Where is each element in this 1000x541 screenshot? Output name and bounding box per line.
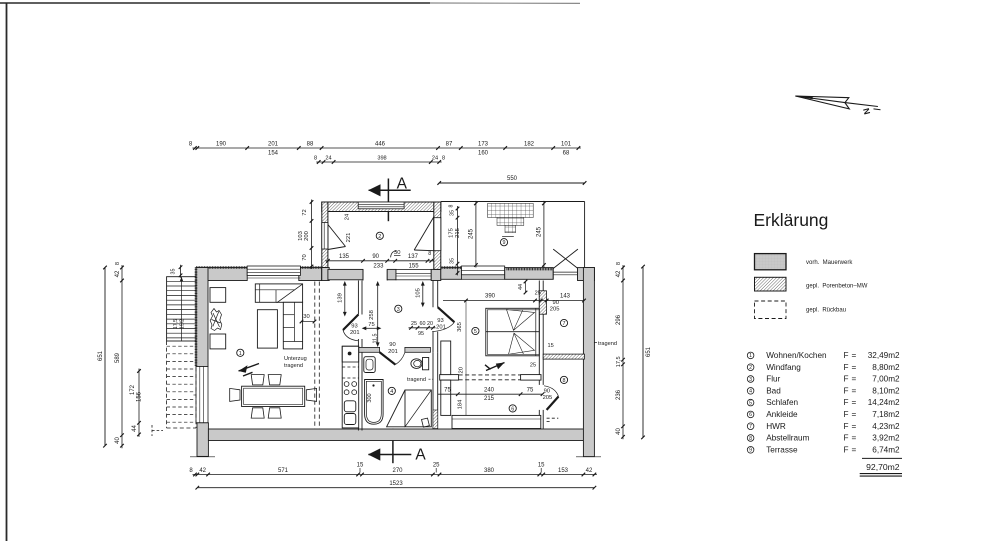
svg-text:15: 15: [357, 463, 364, 469]
svg-text:Schlafen: Schlafen: [766, 398, 798, 407]
svg-text:390: 390: [485, 294, 496, 300]
svg-text:446: 446: [375, 142, 386, 148]
svg-text:25: 25: [535, 290, 541, 296]
svg-text:14,24m2: 14,24m2: [868, 398, 900, 407]
svg-text:17,5: 17,5: [616, 356, 622, 367]
svg-text:15: 15: [538, 463, 545, 469]
svg-text:42: 42: [586, 468, 593, 474]
svg-text:155: 155: [409, 263, 420, 269]
svg-text:6: 6: [749, 412, 752, 418]
svg-text:9: 9: [503, 240, 506, 246]
svg-text:Erklärung: Erklärung: [754, 210, 829, 230]
svg-text:17,5: 17,5: [173, 319, 179, 329]
svg-text:571: 571: [278, 468, 289, 474]
svg-text:5: 5: [749, 400, 752, 406]
svg-text:F: F: [844, 386, 849, 395]
svg-text:A: A: [397, 175, 408, 192]
svg-text:=: =: [852, 410, 857, 419]
svg-text:F: F: [844, 375, 849, 384]
svg-text:201: 201: [268, 142, 279, 148]
svg-text:190: 190: [216, 142, 227, 148]
svg-text:Wohnen/Kochen: Wohnen/Kochen: [766, 351, 827, 360]
svg-text:156: 156: [137, 391, 143, 402]
svg-text:236: 236: [616, 389, 622, 400]
svg-text:19/2: 19/2: [180, 319, 186, 329]
svg-text:8: 8: [442, 156, 445, 162]
svg-text:32,49m2: 32,49m2: [868, 351, 900, 360]
svg-text:24: 24: [432, 156, 438, 162]
svg-text:90: 90: [389, 342, 395, 348]
svg-text:93: 93: [437, 318, 443, 324]
svg-text:25: 25: [530, 363, 536, 369]
svg-text:184: 184: [458, 399, 464, 409]
svg-text:160: 160: [478, 151, 489, 157]
svg-text:200: 200: [304, 231, 310, 241]
svg-text:88: 88: [307, 142, 314, 148]
svg-text:35: 35: [449, 210, 455, 216]
svg-text:8: 8: [314, 156, 317, 162]
svg-text:90: 90: [372, 254, 379, 260]
svg-text:205: 205: [550, 306, 560, 312]
svg-text:4: 4: [749, 389, 752, 395]
svg-text:F: F: [844, 422, 849, 431]
svg-text:92,70m2: 92,70m2: [866, 462, 900, 472]
svg-text:8,80m2: 8,80m2: [872, 363, 900, 372]
svg-text:=: =: [852, 363, 857, 372]
svg-text:7: 7: [749, 424, 752, 430]
svg-text:137: 137: [408, 254, 419, 260]
svg-text:398: 398: [377, 156, 386, 162]
svg-text:=: =: [852, 386, 857, 395]
svg-text:6,74m2: 6,74m2: [872, 445, 900, 454]
svg-text:Abstellraum: Abstellraum: [766, 434, 809, 443]
svg-text:90: 90: [544, 388, 550, 394]
svg-text:8: 8: [616, 262, 622, 265]
svg-text:365: 365: [457, 322, 463, 332]
svg-text:4,23m2: 4,23m2: [872, 422, 900, 431]
svg-text:5: 5: [474, 329, 477, 335]
svg-text:6: 6: [511, 406, 514, 412]
svg-text:72: 72: [302, 209, 308, 215]
svg-text:Unterzug: Unterzug: [284, 356, 307, 362]
svg-text:HWR: HWR: [766, 422, 786, 431]
svg-text:201: 201: [388, 349, 398, 355]
svg-text:44: 44: [132, 425, 138, 432]
svg-text:103: 103: [298, 231, 304, 241]
svg-text:651: 651: [646, 346, 652, 357]
svg-text:F: F: [844, 410, 849, 419]
svg-text:101: 101: [561, 142, 572, 148]
svg-text:8: 8: [749, 436, 752, 442]
svg-text:7,00m2: 7,00m2: [872, 375, 900, 384]
svg-text:42: 42: [115, 270, 121, 277]
svg-text:75: 75: [527, 388, 534, 394]
svg-text:7: 7: [563, 321, 566, 327]
svg-text:=: =: [852, 434, 857, 443]
svg-text:182: 182: [524, 142, 535, 148]
svg-text:93: 93: [351, 324, 357, 330]
svg-text:240: 240: [484, 388, 495, 394]
svg-text:215: 215: [484, 396, 495, 402]
svg-text:258: 258: [369, 310, 375, 320]
svg-text:=: =: [852, 351, 857, 360]
svg-text:=: =: [852, 422, 857, 431]
svg-text:24: 24: [344, 213, 350, 220]
svg-text:vorh. Mauerwerk: vorh. Mauerwerk: [806, 260, 853, 266]
svg-text:87: 87: [446, 142, 453, 148]
svg-text:F: F: [844, 434, 849, 443]
svg-text:42: 42: [199, 468, 206, 474]
svg-text:Terrasse: Terrasse: [766, 445, 798, 454]
svg-text:Ankleide: Ankleide: [766, 410, 798, 419]
svg-text:3,92m2: 3,92m2: [872, 434, 900, 443]
svg-text:42: 42: [616, 270, 622, 277]
svg-text:70: 70: [302, 254, 308, 260]
svg-text:tragend: tragend: [284, 363, 303, 369]
svg-text:172: 172: [130, 384, 136, 395]
svg-text:589: 589: [115, 352, 121, 363]
svg-text:90: 90: [553, 300, 559, 306]
svg-text:245: 245: [537, 226, 543, 237]
svg-text:270: 270: [392, 468, 403, 474]
svg-text:gepl. Porenbeton–MW: gepl. Porenbeton–MW: [806, 283, 868, 289]
svg-text:20: 20: [427, 321, 433, 327]
svg-text:8: 8: [448, 204, 454, 207]
svg-text:=: =: [852, 398, 857, 407]
svg-text:A: A: [415, 447, 426, 464]
svg-text:139: 139: [337, 293, 343, 303]
svg-text:8: 8: [563, 378, 566, 384]
svg-text:2: 2: [749, 365, 752, 371]
svg-text:651: 651: [98, 350, 104, 361]
svg-text:154: 154: [268, 151, 279, 157]
svg-text:25: 25: [433, 463, 440, 469]
svg-text:tragend: tragend: [598, 341, 617, 347]
svg-text:3: 3: [749, 377, 752, 383]
svg-text:201: 201: [436, 325, 446, 331]
svg-text:1: 1: [749, 353, 752, 359]
svg-text:75: 75: [368, 322, 374, 328]
svg-text:135: 135: [339, 254, 350, 260]
svg-text:15: 15: [548, 343, 554, 349]
svg-text:75: 75: [444, 388, 451, 394]
svg-text:F: F: [844, 351, 849, 360]
svg-text:20: 20: [458, 367, 464, 373]
svg-text:F: F: [844, 445, 849, 454]
svg-text:60: 60: [420, 321, 426, 327]
svg-text:44: 44: [518, 284, 524, 290]
svg-text:380: 380: [484, 468, 495, 474]
svg-text:Flur: Flur: [766, 375, 780, 384]
svg-text:=: =: [852, 375, 857, 384]
svg-text:173: 173: [478, 142, 489, 148]
svg-text:201: 201: [350, 330, 360, 336]
svg-text:25: 25: [411, 321, 417, 327]
svg-text:Windfang: Windfang: [766, 363, 801, 372]
svg-text:221: 221: [346, 233, 352, 243]
svg-text:9: 9: [749, 448, 752, 454]
svg-text:tragend: tragend: [407, 377, 426, 383]
svg-text:3: 3: [397, 307, 400, 313]
svg-text:Bad: Bad: [766, 386, 781, 395]
svg-text:40: 40: [115, 437, 121, 444]
svg-text:105: 105: [416, 288, 422, 298]
svg-text:68: 68: [563, 151, 570, 157]
svg-text:7,18m2: 7,18m2: [872, 410, 900, 419]
svg-text:40: 40: [616, 428, 622, 435]
svg-text:1523: 1523: [389, 481, 403, 487]
svg-text:550: 550: [507, 176, 518, 182]
svg-text:8,10m2: 8,10m2: [872, 386, 900, 395]
svg-text:95: 95: [418, 331, 424, 337]
svg-text:2: 2: [378, 234, 381, 240]
svg-text:8: 8: [115, 262, 121, 265]
svg-text:296: 296: [616, 314, 622, 325]
svg-text:205: 205: [543, 395, 553, 401]
svg-text:245: 245: [469, 228, 475, 239]
svg-text:175: 175: [448, 228, 454, 238]
svg-text:300: 300: [367, 393, 373, 402]
svg-text:F: F: [844, 363, 849, 372]
svg-text:143: 143: [560, 294, 571, 300]
svg-text:gepl. Rückbau: gepl. Rückbau: [806, 308, 846, 314]
svg-text:=: =: [852, 445, 857, 454]
svg-text:153: 153: [558, 468, 569, 474]
svg-text:30: 30: [303, 314, 309, 320]
svg-text:1: 1: [239, 351, 242, 357]
svg-text:233: 233: [373, 263, 384, 269]
svg-text:F: F: [844, 398, 849, 407]
svg-text:8: 8: [428, 251, 431, 257]
svg-text:35: 35: [449, 258, 455, 264]
svg-text:215: 215: [455, 228, 461, 238]
svg-text:4: 4: [390, 389, 393, 395]
svg-text:24: 24: [325, 156, 331, 162]
svg-text:35: 35: [171, 269, 177, 275]
